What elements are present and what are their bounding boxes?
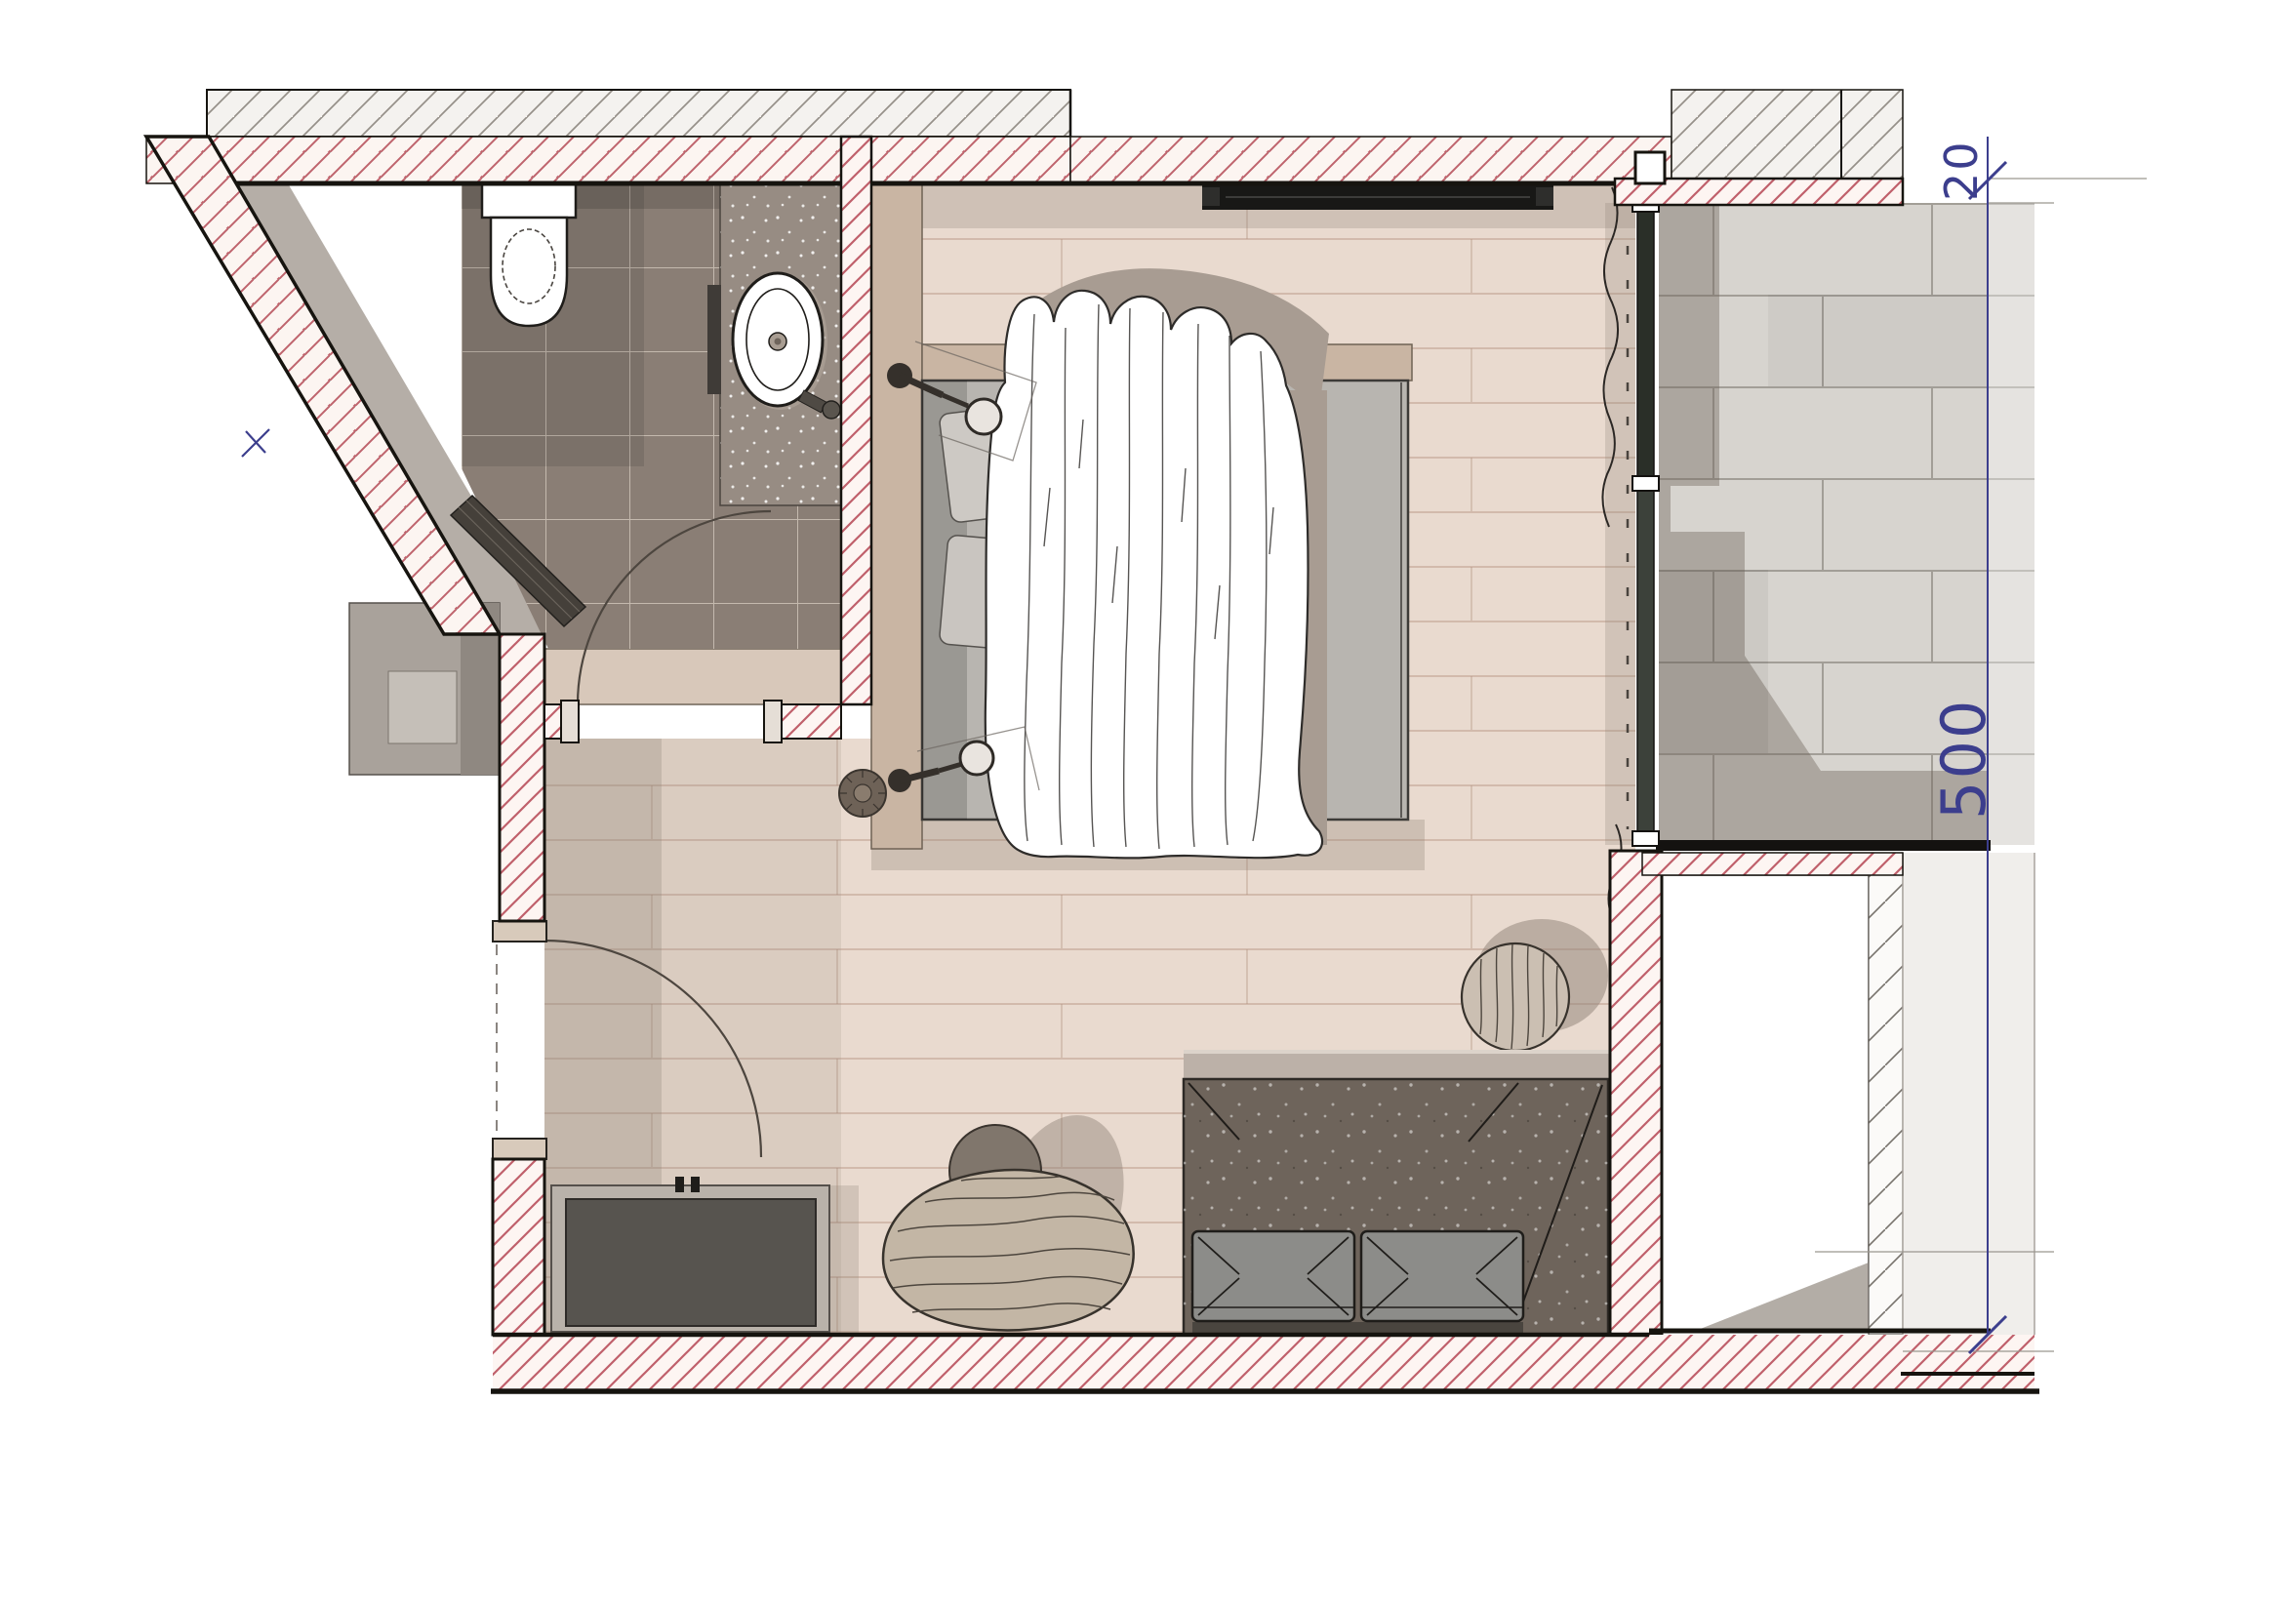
bathroom [209, 139, 841, 704]
mirror [707, 285, 721, 394]
lamp-head [966, 399, 1001, 434]
terrace-edge [1656, 840, 1991, 851]
entry-frame-top [493, 921, 546, 942]
wall-top-right [1672, 90, 1903, 179]
dim-label-20: 20 [1935, 140, 1988, 201]
lamp-head [960, 742, 993, 775]
wall-west-lower [493, 1159, 544, 1335]
void-room [1662, 853, 2034, 1335]
sofa-group [1184, 1050, 1625, 1350]
dim-label-500: 500 [1928, 699, 1999, 820]
sideboard-knob [675, 1177, 684, 1192]
bath-door-frame-right [764, 701, 782, 742]
duvet [986, 291, 1322, 859]
wall-top-bedroom [1070, 137, 1672, 183]
wall-west-upper [500, 634, 544, 921]
existing-wall-strip [1869, 868, 1903, 1335]
sofa [1184, 1079, 1608, 1350]
wall-bathroom-partition [841, 137, 871, 704]
sofa-cushion-right [1361, 1231, 1523, 1321]
sideboard-knob [691, 1177, 700, 1192]
wall-top-upper [207, 90, 1070, 137]
lounge-chair [883, 1170, 1134, 1330]
diagonal-wall-tick [242, 429, 269, 457]
toilet [482, 184, 576, 326]
corner-column [1635, 152, 1665, 183]
headboard-panel [871, 183, 922, 849]
wall-top-bathroom [146, 137, 1070, 183]
bath-door-frame-left [561, 701, 579, 742]
wall-east-lower [1610, 851, 1662, 1335]
wall-tv [1202, 183, 1553, 210]
vanity-counter [707, 183, 841, 505]
sideboard-shadow [829, 1185, 859, 1335]
bedside-stool [839, 770, 886, 817]
door-mullion [1632, 476, 1659, 491]
entry-frame-bottom [493, 1139, 546, 1159]
floor-plan-drawing: 20 500 [0, 0, 2296, 1604]
side-corridor-band [1903, 853, 2034, 1335]
door-mullion [1632, 831, 1659, 846]
sideboard [551, 1177, 829, 1332]
wall-bath-door-stub-right [782, 704, 841, 739]
sofa-shadow [1184, 1054, 1625, 1081]
wall-bath-door-stub-left [544, 704, 561, 739]
wall-diagonal [146, 137, 500, 634]
wall-bottom [493, 1335, 2034, 1390]
sofa-cushion-left [1192, 1231, 1354, 1321]
wall-void-top [1642, 853, 1903, 875]
bathroom-threshold [544, 649, 841, 704]
floor-plan-canvas: 20 500 [0, 0, 2296, 1604]
